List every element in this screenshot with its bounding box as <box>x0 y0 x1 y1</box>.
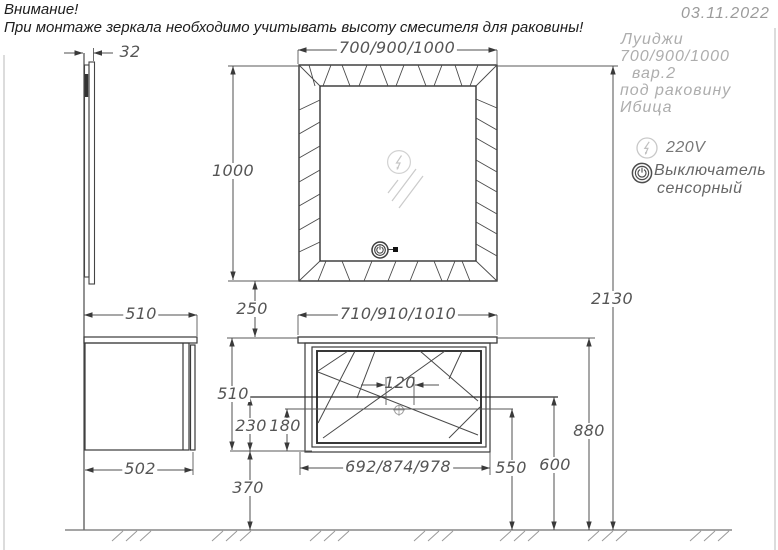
dim-cabinet-body-depth: 502 <box>122 461 157 477</box>
voltage-label: 220V <box>666 139 705 157</box>
dim-550: 550 <box>493 460 528 476</box>
drawing-date: 03.11.2022 <box>681 5 770 23</box>
dim-cabinet-body-width: 692/874/978 <box>343 459 453 475</box>
note-model-name: Луиджи <box>621 31 684 49</box>
dim-880: 880 <box>571 423 606 439</box>
warning-text: При монтаже зеркала необходимо учитывать… <box>4 20 583 37</box>
dim-bottom-to-floor: 370 <box>230 480 265 496</box>
cabinet-front-view <box>298 337 497 452</box>
drawer-mosaic <box>318 351 480 438</box>
cabinet-side-view <box>84 337 197 450</box>
dim-180: 180 <box>267 418 302 434</box>
dim-cabinet-height: 510 <box>215 386 250 402</box>
note-model-sizes: 700/900/1000 <box>620 48 730 66</box>
voltage-lightning-icon <box>635 136 659 160</box>
dim-mirror-height: 1000 <box>210 163 256 179</box>
dim-600: 600 <box>537 457 572 473</box>
dim-mirror-width: 700/900/1000 <box>337 40 457 56</box>
dim-total-height: 2130 <box>589 291 635 307</box>
note-variant: вар.2 <box>632 65 676 83</box>
dim-mirror-thickness: 32 <box>118 44 143 60</box>
warning-title: Внимание! <box>4 2 78 19</box>
switch-label-line2: сенсорный <box>657 180 742 198</box>
mirror-touch-switch-icon <box>370 240 404 261</box>
dim-gap-mirror-cabinet: 250 <box>234 301 269 317</box>
note-for-sink: под раковину <box>620 82 731 100</box>
dimension-lines <box>64 50 613 530</box>
mirror-lamp-lightning-icon <box>386 149 412 175</box>
dim-230: 230 <box>233 418 268 434</box>
dim-cabinet-depth: 510 <box>123 306 158 322</box>
switch-label-line1: Выключатель <box>654 162 766 180</box>
dim-cabinet-top-width: 710/910/1010 <box>338 306 458 322</box>
touch-switch-icon <box>630 161 654 185</box>
dim-faucet-spacing: 120 <box>382 375 417 391</box>
mirror-wall-bracket <box>85 74 88 97</box>
technical-drawing-page: Внимание! При монтаже зеркала необходимо… <box>0 0 778 550</box>
floor-hatching <box>112 531 729 541</box>
note-sink-name: Ибица <box>620 99 673 117</box>
